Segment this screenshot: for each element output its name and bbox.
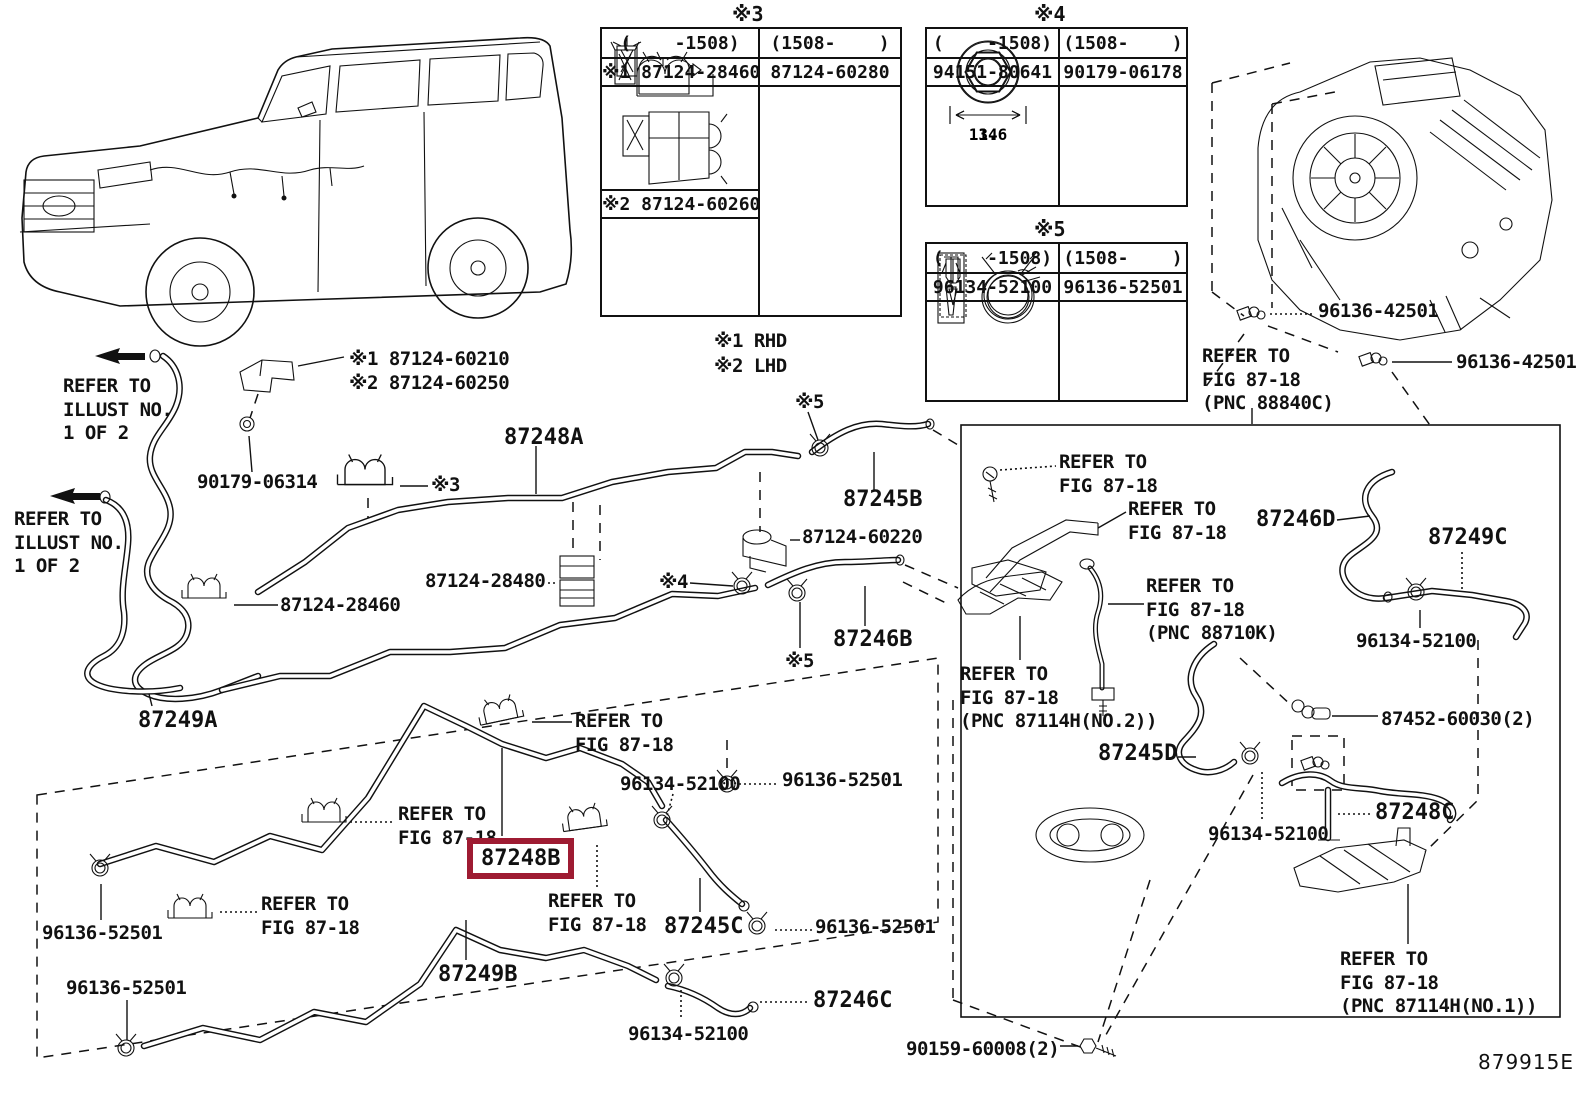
table5-title: ※5 [1034, 217, 1065, 241]
part-label-87124-28460: 87124-28460 [280, 594, 400, 618]
table4-part-right: 90179-06178 [1059, 58, 1187, 86]
part-label-87248C: 87248C [1375, 799, 1454, 826]
part-label-96136-42501: 96136-42501 [1456, 351, 1576, 375]
table4-header-right: (1508- ) [1059, 28, 1187, 58]
part-label-87124-60220: 87124-60220 [802, 526, 922, 550]
part-label-87124-28480: 87124-28480 [425, 570, 545, 594]
part-label-87246C: 87246C [813, 987, 892, 1014]
note-ref-5a: ※5 [795, 391, 824, 415]
hose-pipes [87, 356, 1526, 1046]
table3-title: ※3 [732, 2, 763, 26]
part-label-96134-52100: 96134-52100 [1356, 630, 1476, 654]
damper-87124-28480 [560, 556, 594, 606]
vehicle-illustration [20, 38, 571, 346]
part-label-87245B: 87245B [843, 486, 922, 513]
refer-fig-label: REFER TO FIG 87-18 [1059, 451, 1157, 498]
highlighted-part-label-87248B: 87248B [467, 838, 574, 879]
clip-illustration-60280 [759, 86, 901, 316]
grommet-icon [1036, 808, 1144, 862]
part-label-96134-52100: 96134-52100 [628, 1023, 748, 1047]
clip-icon-87452 [1292, 700, 1330, 719]
parts-diagram-page: ※3 ( -1508) (1508- ) ※1 87124-28460 8712… [0, 0, 1592, 1099]
clamp-illustration-96136 [1059, 301, 1187, 401]
note-rhd: ※1 RHD [714, 330, 787, 354]
part-label-87249A: 87249A [138, 707, 217, 734]
table4-title: ※4 [1034, 2, 1065, 26]
figure-number: 879915E [1478, 1050, 1574, 1075]
refer-arrow-icon [95, 348, 160, 364]
refer-arrow-icon [50, 488, 110, 504]
nut-illustration-90179: 14 [1059, 86, 1187, 206]
screw-icon [983, 467, 997, 502]
part-label-87246D: 87246D [1256, 506, 1335, 533]
part-label-96136-42501: 96136-42501 [1318, 300, 1438, 324]
part-label-90159-60008: 90159-60008(2) [906, 1038, 1059, 1062]
part-label-96136-52501: 96136-52501 [66, 977, 186, 1001]
heater-unit-illustration [1258, 58, 1552, 340]
part-label-96136-52501: 96136-52501 [782, 769, 902, 793]
part-label-87249C: 87249C [1428, 524, 1507, 551]
table3-part-right: 87124-60280 [759, 58, 901, 86]
part-label-96136-52501: 96136-52501 [815, 916, 935, 940]
table-note3: ( -1508) (1508- ) ※1 87124-28460 87124-6… [600, 27, 902, 317]
refer-fig-pnc-88840c-label: REFER TO FIG 87-18 (PNC 88840C) [1202, 345, 1333, 416]
table-note5: ( -1508) (1508- ) 96134-52100 96136-5250… [925, 242, 1188, 402]
refer-illust-label: REFER TO ILLUST NO. 1 OF 2 [63, 375, 172, 446]
part-label-87452-60030: 87452-60030(2) [1381, 708, 1534, 732]
part-label-87246B: 87246B [833, 626, 912, 653]
refer-fig-label: REFER TO FIG 87-18 [1128, 498, 1226, 545]
part-label-90179-06314: 90179-06314 [197, 471, 317, 495]
bracket-87114-no2 [958, 572, 1062, 614]
part-label-96134-52100: 96134-52100 [620, 773, 740, 797]
table-note4: ( -1508) (1508- ) 94151-80641 90179-0617… [925, 27, 1188, 207]
bracket-87124-60220 [743, 530, 786, 572]
part-label-87248A: 87248A [504, 424, 583, 451]
nut-90179-06314 [240, 417, 254, 431]
part-label-96136-52501: 96136-52501 [42, 922, 162, 946]
part-label-96134-52100: 96134-52100 [1208, 823, 1328, 847]
table3-header-right: (1508- ) [759, 28, 901, 58]
refer-illust-label: REFER TO ILLUST NO. 1 OF 2 [14, 508, 123, 579]
note-ref-5b: ※5 [785, 650, 814, 674]
note-lhd: ※2 LHD [714, 355, 787, 379]
table5-part-right: 96136-52501 [1059, 273, 1187, 301]
bracket-87124-60210 [240, 360, 294, 392]
note-ref-4: ※4 [659, 571, 688, 595]
nut-dim-right: 14 [978, 125, 997, 144]
part-label-87245C: 87245C [664, 913, 743, 940]
part-label-87124-60210: ※1 87124-60210 ※2 87124-60250 [349, 348, 509, 395]
part-label-87249B: 87249B [438, 961, 517, 988]
refer-fig-pnc-88710k-label: REFER TO FIG 87-18 (PNC 88710K) [1146, 575, 1277, 646]
refer-fig-pnc-87114h-no2-label: REFER TO FIG 87-18 (PNC 87114H(NO.2)) [960, 663, 1157, 734]
refer-fig-label: REFER TO FIG 87-18 [261, 893, 359, 940]
note-ref-3: ※3 [431, 474, 460, 498]
part-label-87245D: 87245D [1098, 740, 1177, 767]
refer-fig-label: REFER TO FIG 87-18 [575, 710, 673, 757]
table5-header-right: (1508- ) [1059, 243, 1187, 273]
refer-fig-label: REFER TO FIG 87-18 [548, 890, 646, 937]
refer-fig-pnc-87114h-no1-label: REFER TO FIG 87-18 (PNC 87114H(NO.1)) [1340, 948, 1537, 1019]
